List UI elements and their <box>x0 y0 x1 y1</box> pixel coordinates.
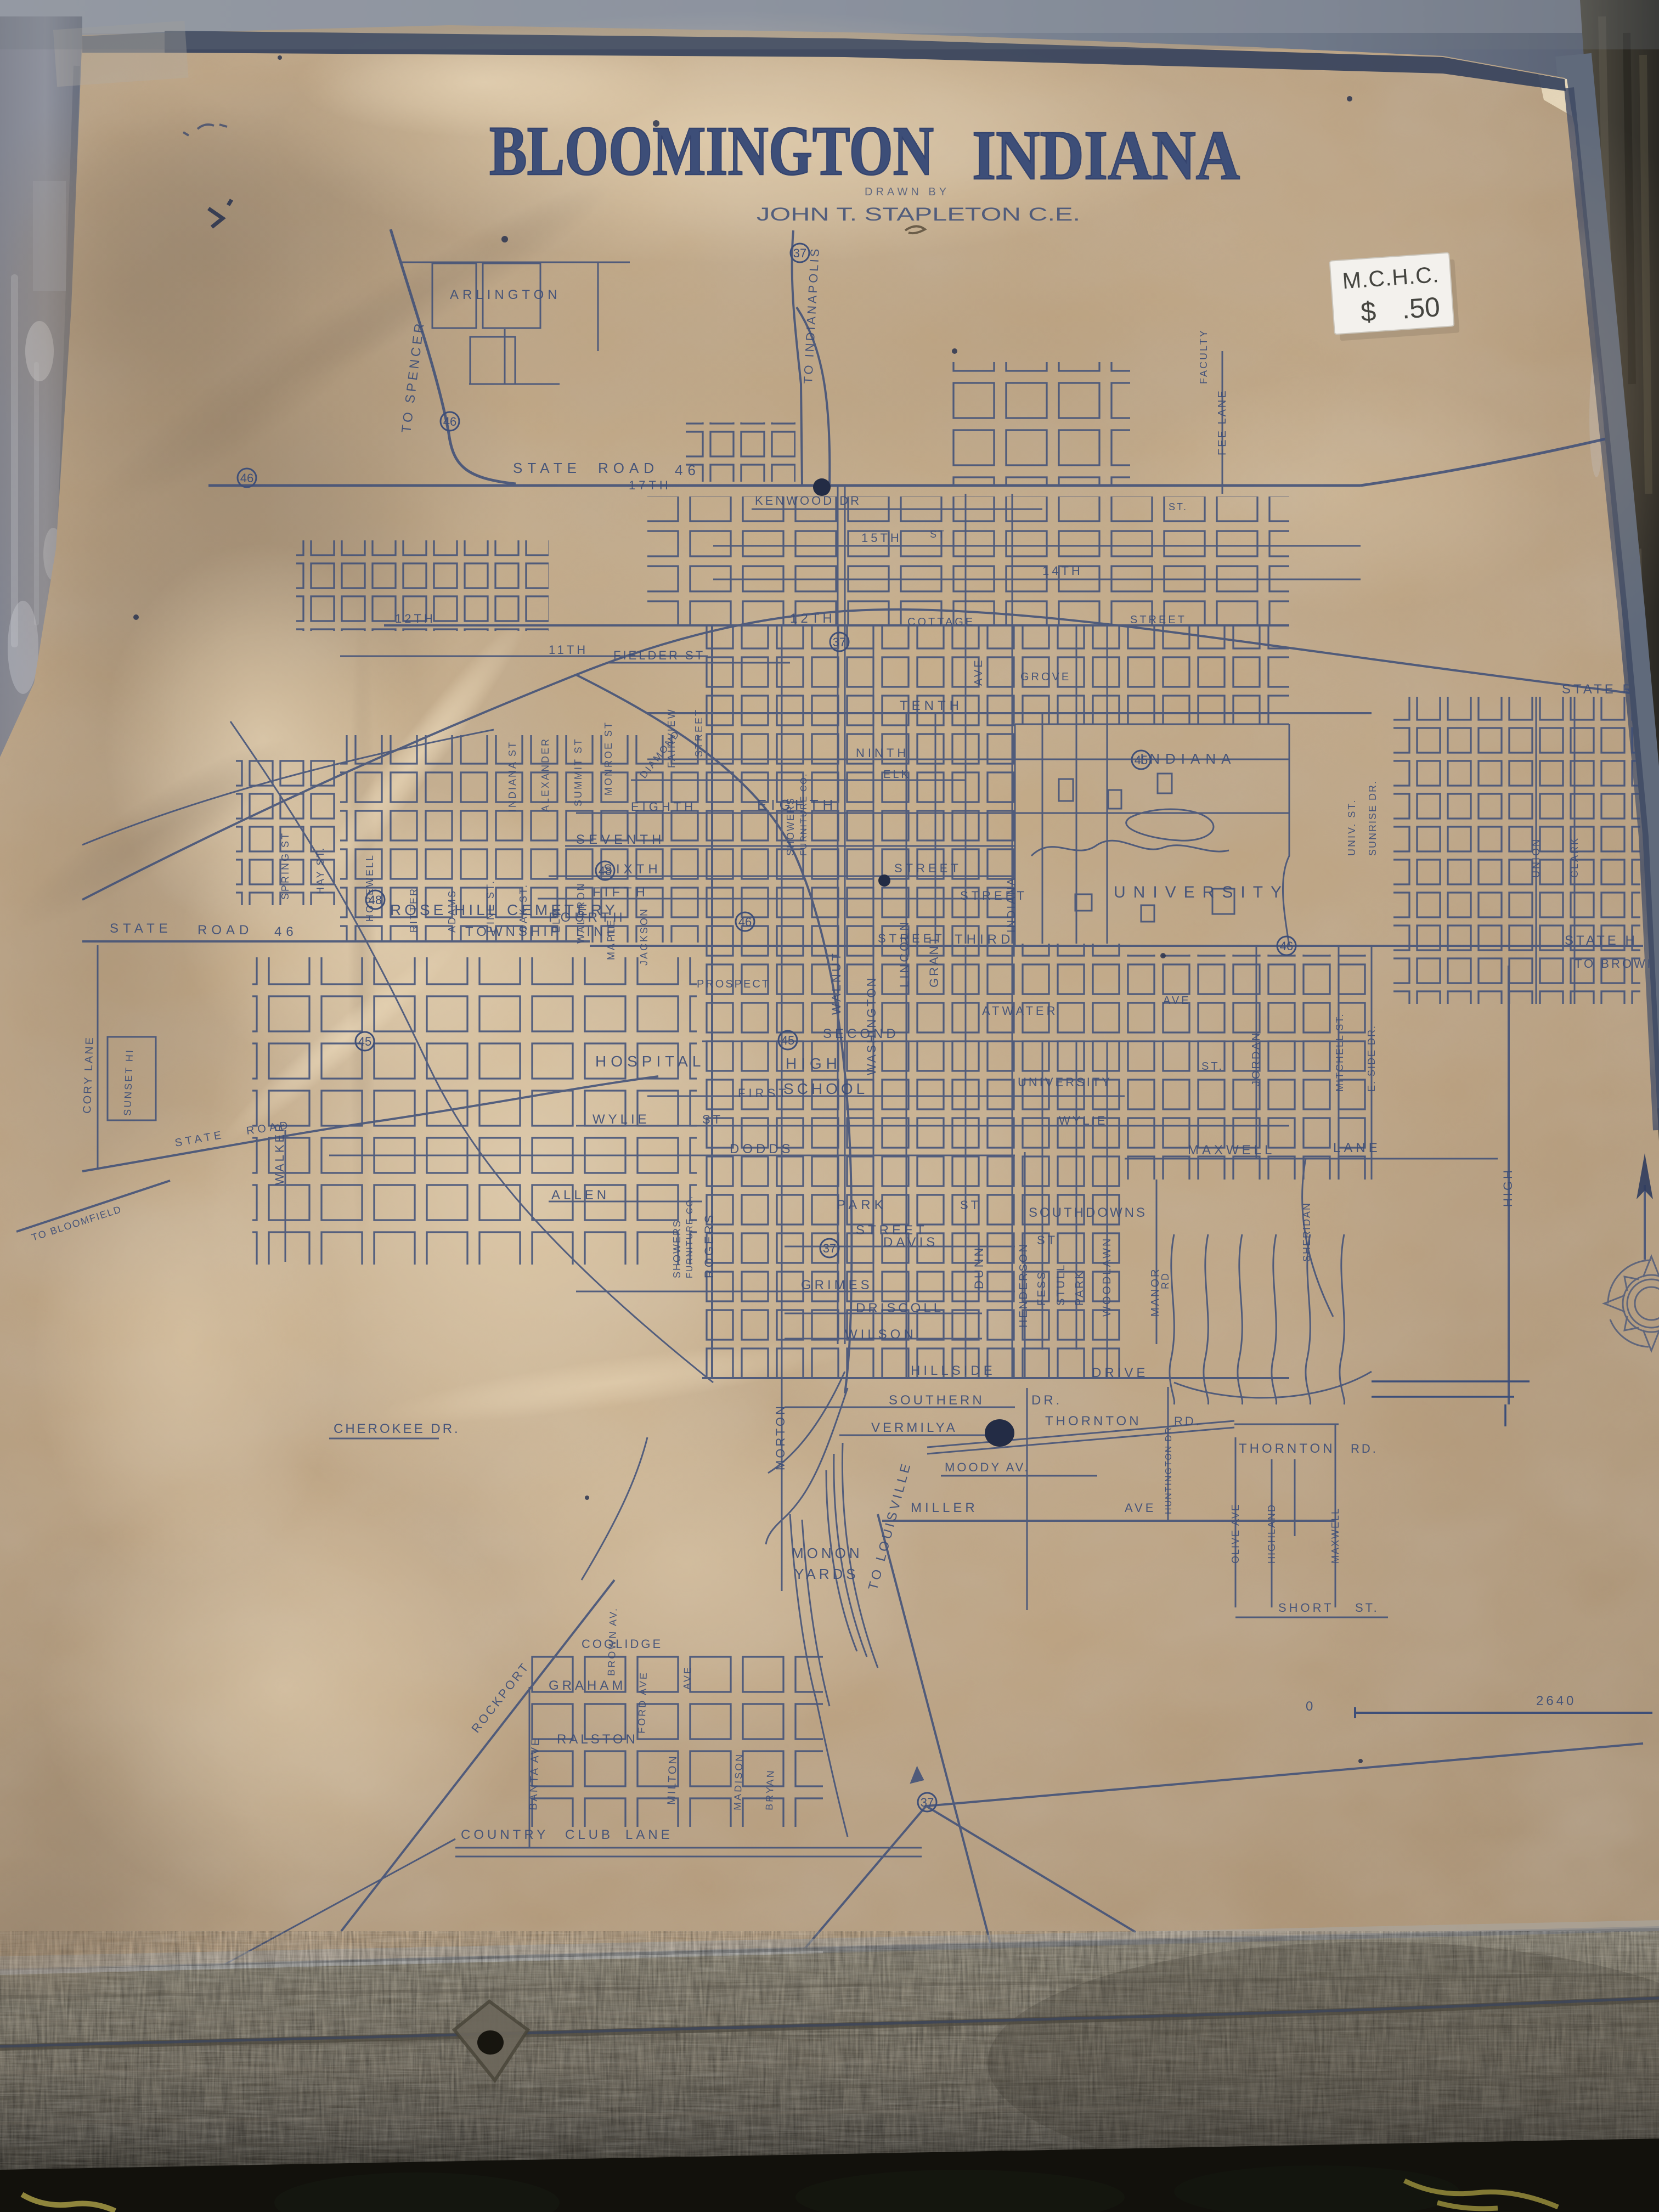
svg-text:HILLSIDE: HILLSIDE <box>911 1363 996 1378</box>
svg-text:46: 46 <box>240 471 253 485</box>
svg-text:THORNTON: THORNTON <box>1239 1441 1335 1456</box>
svg-text:THORNTON: THORNTON <box>1045 1414 1142 1429</box>
svg-text:DRISCOLL: DRISCOLL <box>856 1301 944 1316</box>
svg-text:SECOND: SECOND <box>823 1026 899 1041</box>
svg-text:46: 46 <box>274 924 298 939</box>
svg-text:INDIANA ST: INDIANA ST <box>507 741 518 812</box>
svg-text:EIGHTH: EIGHTH <box>757 797 837 813</box>
svg-text:HOPEWELL: HOPEWELL <box>364 854 375 922</box>
svg-text:15TH: 15TH <box>861 531 902 545</box>
svg-text:37: 37 <box>921 1796 934 1809</box>
svg-text:EIGHTH: EIGHTH <box>631 800 696 814</box>
svg-text:STREET: STREET <box>1130 614 1187 626</box>
svg-text:ST: ST <box>960 1198 981 1212</box>
svg-text:HUNTINGTON DR: HUNTINGTON DR <box>1164 1426 1173 1514</box>
svg-text:$: $ <box>1359 296 1377 328</box>
svg-text:SPRING ST: SPRING ST <box>280 832 291 900</box>
svg-text:MAPLE: MAPLE <box>606 918 617 960</box>
svg-text:CLUB: CLUB <box>565 1827 613 1842</box>
svg-text:WALNUT: WALNUT <box>830 951 843 1015</box>
svg-text:DRAWN BY: DRAWN BY <box>865 186 950 198</box>
svg-text:ROGERS: ROGERS <box>702 1213 716 1278</box>
svg-text:INDIANA: INDIANA <box>1006 877 1018 933</box>
svg-text:STATE R: STATE R <box>1562 682 1635 697</box>
svg-text:FAIRVIEW: FAIRVIEW <box>666 708 677 768</box>
svg-text:WYLIE: WYLIE <box>592 1112 650 1127</box>
svg-text:JACKSON: JACKSON <box>639 907 650 966</box>
svg-text:RD.: RD. <box>1351 1442 1378 1455</box>
svg-text:BLOOMINGTON: BLOOMINGTON <box>489 112 934 190</box>
svg-text:45: 45 <box>358 1035 371 1048</box>
svg-text:LANE: LANE <box>625 1827 673 1842</box>
svg-text:37: 37 <box>793 246 806 260</box>
svg-text:LINCOLN: LINCOLN <box>898 920 911 988</box>
svg-text:46: 46 <box>443 415 456 428</box>
svg-text:COUNTRY: COUNTRY <box>461 1827 549 1842</box>
svg-text:STATE H: STATE H <box>1565 933 1638 948</box>
svg-text:STULL: STULL <box>1055 1263 1067 1306</box>
svg-text:ARLINGTON: ARLINGTON <box>450 287 561 302</box>
svg-text:SHORT: SHORT <box>1278 1601 1334 1615</box>
svg-text:AVE: AVE <box>681 1666 693 1690</box>
svg-text:HIGHLAND: HIGHLAND <box>1266 1504 1277 1564</box>
svg-text:SHERIDAN: SHERIDAN <box>1301 1202 1312 1262</box>
svg-text:BRYAN: BRYAN <box>764 1769 776 1810</box>
svg-text:MAXWELL: MAXWELL <box>1330 1508 1341 1564</box>
svg-text:GRANT: GRANT <box>927 934 941 988</box>
svg-text:ST: ST <box>930 529 946 540</box>
svg-text:UNIVERSITY: UNIVERSITY <box>1018 1075 1112 1089</box>
svg-text:FEE LANE: FEE LANE <box>1216 389 1228 455</box>
svg-text:ALLEN: ALLEN <box>551 1188 610 1203</box>
svg-text:DUNN: DUNN <box>972 1245 986 1289</box>
svg-text:SOUTHERN: SOUTHERN <box>889 1393 985 1408</box>
svg-text:WASHINGTON: WASHINGTON <box>865 977 878 1075</box>
svg-text:STATE: STATE <box>513 460 582 476</box>
svg-text:FURNITURE CO.: FURNITURE CO. <box>685 1195 695 1278</box>
svg-text:WOODLAWN: WOODLAWN <box>1101 1237 1113 1317</box>
svg-text:FIELDER ST: FIELDER ST <box>613 648 705 662</box>
svg-text:FURNITURE CO.: FURNITURE CO. <box>799 773 809 856</box>
svg-text:STATE: STATE <box>110 921 172 936</box>
svg-text:HOSPITAL: HOSPITAL <box>595 1053 705 1070</box>
svg-text:ST.: ST. <box>1201 1060 1224 1073</box>
svg-text:HAY ST.: HAY ST. <box>315 847 326 894</box>
svg-text:PARK: PARK <box>1074 1270 1086 1306</box>
svg-text:MILLER: MILLER <box>911 1500 978 1515</box>
svg-text:SOUTHDOWNS: SOUTHDOWNS <box>1029 1205 1147 1220</box>
svg-text:2640: 2640 <box>1536 1694 1576 1708</box>
svg-text:UNION: UNION <box>1531 838 1542 878</box>
svg-text:ST: ST <box>1037 1233 1058 1247</box>
svg-text:RD: RD <box>1160 1272 1171 1289</box>
svg-text:CLARK: CLARK <box>1569 837 1580 878</box>
svg-text:INDIANA: INDIANA <box>1140 751 1236 767</box>
svg-text:SEVENTH: SEVENTH <box>576 832 665 847</box>
svg-text:ST.: ST. <box>1355 1601 1379 1615</box>
svg-text:WYLIE: WYLIE <box>1059 1114 1107 1127</box>
svg-text:FACULTY: FACULTY <box>1198 329 1209 384</box>
svg-text:ROAD: ROAD <box>598 460 659 476</box>
svg-text:ADAMS: ADAMS <box>447 889 458 933</box>
svg-text:KENWOOD DR: KENWOOD DR <box>755 494 861 507</box>
svg-text:TO BROWN: TO BROWN <box>1575 957 1658 970</box>
svg-text:ATWATER: ATWATER <box>982 1004 1058 1018</box>
svg-text:AVE: AVE <box>973 658 985 686</box>
svg-text:12TH: 12TH <box>395 612 436 625</box>
svg-text:PARK: PARK <box>837 1198 887 1212</box>
svg-text:46: 46 <box>675 462 701 478</box>
svg-text:UNIVERSITY: UNIVERSITY <box>1114 883 1289 901</box>
svg-text:PINE ST.: PINE ST. <box>485 879 496 933</box>
svg-text:DAVIS: DAVIS <box>883 1235 938 1250</box>
svg-text:CHEROKEE DR.: CHEROKEE DR. <box>334 1421 460 1436</box>
svg-text:RITTER: RITTER <box>408 887 419 933</box>
svg-text:AVE: AVE <box>1125 1501 1156 1515</box>
svg-text:GRAHAM: GRAHAM <box>549 1678 626 1693</box>
svg-text:46: 46 <box>1280 939 1293 953</box>
svg-text:STREET: STREET <box>894 861 962 875</box>
svg-text:GRIMES: GRIMES <box>801 1278 873 1293</box>
svg-text:HENDERSON: HENDERSON <box>1018 1243 1030 1328</box>
svg-text:DRIVE: DRIVE <box>1092 1365 1148 1380</box>
svg-text:SUMMIT ST: SUMMIT ST <box>573 737 584 806</box>
svg-text:MILTON: MILTON <box>665 1754 679 1805</box>
svg-text:ELM: ELM <box>551 907 562 933</box>
svg-text:MONROE ST: MONROE ST <box>603 721 614 795</box>
svg-text:BANTA AVE: BANTA AVE <box>527 1736 542 1810</box>
svg-text:DR.: DR. <box>1031 1393 1062 1408</box>
svg-text:UNIV. ST.: UNIV. ST. <box>1346 799 1357 856</box>
svg-text:MADISON: MADISON <box>732 1752 745 1810</box>
svg-text:SHOWERS: SHOWERS <box>672 1220 682 1278</box>
svg-text:ALEXANDER: ALEXANDER <box>540 737 551 812</box>
svg-text:MITCHELL ST.: MITCHELL ST. <box>1334 1013 1345 1092</box>
svg-text:AVE: AVE <box>1163 995 1191 1007</box>
svg-text:SUNSET HI: SUNSET HI <box>122 1048 135 1116</box>
svg-text:OLIVE AVE: OLIVE AVE <box>1230 1503 1241 1564</box>
svg-text:VERMILYA: VERMILYA <box>871 1420 958 1435</box>
svg-text:YARDS: YARDS <box>794 1566 859 1582</box>
svg-text:ST: ST <box>702 1113 723 1126</box>
svg-text:37: 37 <box>823 1242 836 1255</box>
svg-text:GROVE: GROVE <box>1020 671 1071 683</box>
svg-text:ROAD: ROAD <box>198 923 253 938</box>
svg-text:JOHN T. STAPLETON C.E.: JOHN T. STAPLETON C.E. <box>757 204 1080 225</box>
svg-text:46: 46 <box>738 915 752 929</box>
svg-text:OAK ST.: OAK ST. <box>518 883 529 933</box>
svg-text:SCHOOL: SCHOOL <box>783 1080 868 1097</box>
svg-text:ELK: ELK <box>883 769 911 781</box>
svg-text:TOWNSHIP: TOWNSHIP <box>465 924 562 939</box>
svg-text:12TH: 12TH <box>790 611 836 626</box>
svg-text:37: 37 <box>833 635 846 649</box>
svg-text:ST.: ST. <box>1169 501 1188 512</box>
svg-text:E. SIDE DR.: E. SIDE DR. <box>1366 1025 1377 1092</box>
svg-text:COTTAGE: COTTAGE <box>907 616 975 628</box>
svg-text:PROSPECT: PROSPECT <box>697 978 770 990</box>
svg-text:.50: .50 <box>1401 291 1441 325</box>
svg-text:SUNRISE DR.: SUNRISE DR. <box>1367 780 1378 856</box>
svg-text:DODDS: DODDS <box>730 1142 794 1156</box>
svg-text:MOODY AV.: MOODY AV. <box>945 1460 1030 1474</box>
svg-text:RD.: RD. <box>1174 1414 1201 1428</box>
svg-text:14TH: 14TH <box>1042 564 1083 578</box>
svg-text:FESS: FESS <box>1036 1271 1048 1306</box>
svg-text:FORD AVE: FORD AVE <box>636 1671 649 1734</box>
svg-text:TENTH: TENTH <box>900 698 963 713</box>
svg-text:JORDAN: JORDAN <box>1250 1031 1262 1086</box>
svg-text:THIRD: THIRD <box>955 932 1014 947</box>
svg-text:SHOWERS: SHOWERS <box>785 797 796 856</box>
svg-text:WALDRON: WALDRON <box>575 882 586 944</box>
svg-text:MONON: MONON <box>792 1545 863 1561</box>
svg-text:11TH: 11TH <box>549 643 588 657</box>
svg-text:MAXWELL: MAXWELL <box>1188 1143 1275 1158</box>
svg-text:STREET: STREET <box>693 708 704 757</box>
svg-text:WILSON: WILSON <box>845 1327 917 1342</box>
svg-text:FIFTH: FIFTH <box>592 885 649 900</box>
svg-text:HIGH: HIGH <box>786 1055 842 1072</box>
svg-text:HIGH: HIGH <box>1501 1168 1515 1207</box>
svg-text:45: 45 <box>781 1034 794 1047</box>
svg-text:LANE: LANE <box>1333 1141 1381 1155</box>
svg-text:INDIANA: INDIANA <box>972 116 1240 194</box>
svg-text:17TH: 17TH <box>629 478 672 492</box>
svg-text:FIRST: FIRST <box>738 1086 789 1100</box>
svg-text:SIXTH: SIXTH <box>603 862 662 877</box>
svg-text:0: 0 <box>1306 1699 1315 1714</box>
svg-text:RALSTON: RALSTON <box>557 1732 638 1747</box>
svg-text:NINTH: NINTH <box>856 746 909 760</box>
svg-text:MORTON: MORTON <box>774 1404 787 1470</box>
svg-text:COOLIDGE: COOLIDGE <box>582 1637 663 1651</box>
